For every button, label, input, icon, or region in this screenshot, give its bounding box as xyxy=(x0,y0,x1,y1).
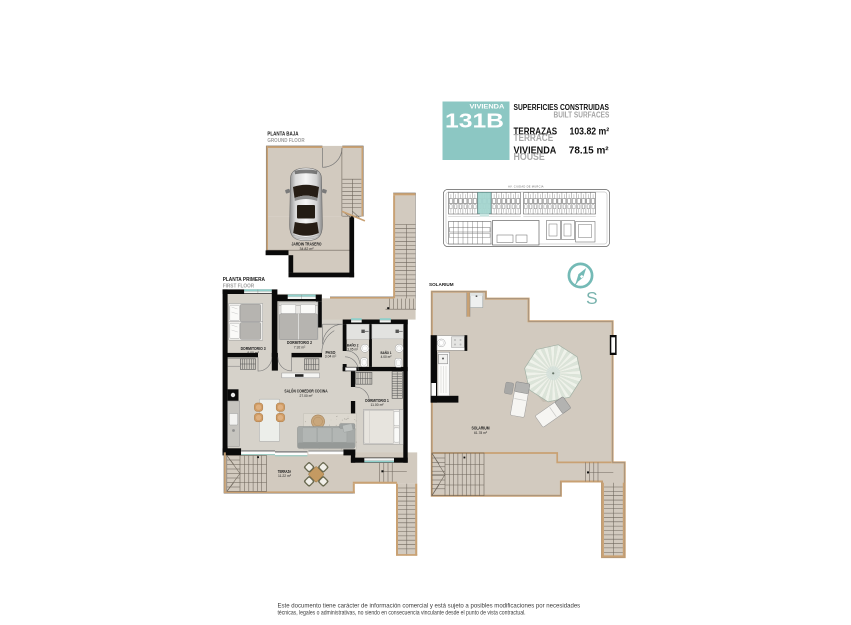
svg-text:11.00 m²: 11.00 m² xyxy=(371,403,385,407)
svg-text:PLANTA PRIMERA: PLANTA PRIMERA xyxy=(223,277,266,283)
svg-text:TERRACE: TERRACE xyxy=(514,133,554,144)
svg-text:11.22 m²: 11.22 m² xyxy=(278,474,292,478)
svg-text:SOLARIUM: SOLARIUM xyxy=(471,425,490,430)
svg-text:Este documento tiene carácter: Este documento tiene carácter de informa… xyxy=(278,603,581,609)
svg-text:S: S xyxy=(586,288,598,308)
svg-text:técnicas, legales o administra: técnicas, legales o administrativas, no … xyxy=(278,611,526,617)
svg-text:SALÓN COMEDOR COCINA: SALÓN COMEDOR COCINA xyxy=(284,388,327,393)
svg-text:HOUSE: HOUSE xyxy=(514,152,546,163)
svg-text:AV. CIUDAD DE MURCIA: AV. CIUDAD DE MURCIA xyxy=(508,184,544,188)
svg-text:BUILT SURFACES: BUILT SURFACES xyxy=(554,110,610,119)
svg-text:131B: 131B xyxy=(445,109,504,132)
svg-text:4.00 m²: 4.00 m² xyxy=(381,355,393,359)
svg-text:FIRST FLOOR: FIRST FLOOR xyxy=(223,284,255,290)
svg-text:103.82 m²: 103.82 m² xyxy=(570,126,610,137)
svg-text:61.78 m²: 61.78 m² xyxy=(474,431,488,435)
svg-text:27.00 m²: 27.00 m² xyxy=(300,394,314,398)
svg-text:34.82 m²: 34.82 m² xyxy=(300,246,315,251)
svg-text:SOLARIUM: SOLARIUM xyxy=(429,282,454,287)
svg-text:PLANTA BAJA: PLANTA BAJA xyxy=(267,131,298,137)
svg-text:3.04 m²: 3.04 m² xyxy=(325,355,337,359)
svg-text:9.00 m²: 9.00 m² xyxy=(247,351,259,355)
svg-text:7.92 m²: 7.92 m² xyxy=(294,345,306,349)
svg-text:78.15 m²: 78.15 m² xyxy=(569,146,609,157)
svg-text:GROUND FLOOR: GROUND FLOOR xyxy=(267,138,305,144)
